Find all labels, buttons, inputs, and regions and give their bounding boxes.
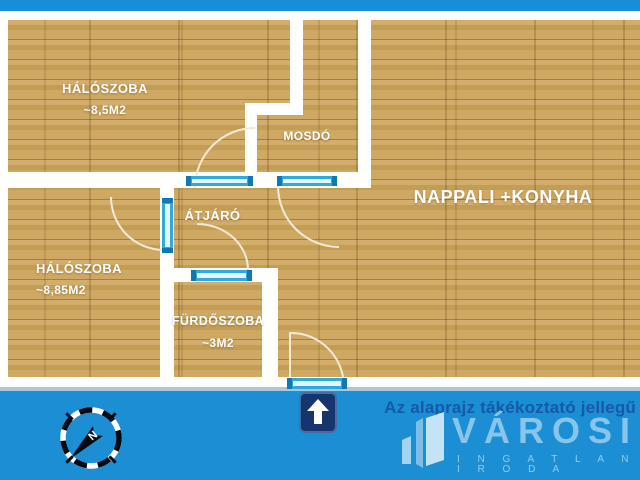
brand-wordmark: VÁROSI	[452, 413, 638, 449]
room-label-atjaro: ÁTJÁRÓ	[165, 209, 260, 222]
room-label-mosdo: MOSDÓ	[262, 130, 352, 142]
door-mosdo	[277, 176, 337, 186]
wall-mosdo-upper	[290, 20, 303, 112]
floorplan-image: HÁLÓSZOBA ~8,5M2 MOSDÓ ÁTJÁRÓ HÁLÓSZOBA …	[0, 0, 640, 480]
door-haloszoba-top	[186, 176, 253, 186]
room-label-nappali: NAPPALI +KONYHA	[378, 188, 628, 206]
buildings-logo-icon	[398, 410, 454, 470]
room-label-furdoszoba: FÜRDŐSZOBA ~3M2	[166, 315, 270, 349]
compass-icon: N	[55, 401, 127, 475]
outer-wall-top	[0, 11, 640, 20]
wall-nappali-divider	[358, 20, 371, 186]
brand-subtitle: I N G A T L A N I R O D A	[457, 455, 640, 475]
up-arrow-icon	[299, 392, 337, 433]
outer-wall-left	[0, 20, 8, 377]
door-furdoszoba	[191, 270, 252, 281]
room-label-haloszoba-bottom: HÁLÓSZOBA ~8,85M2	[36, 262, 176, 296]
room-label-haloszoba-top: HÁLÓSZOBA ~8,5M2	[30, 82, 180, 116]
door-entry	[287, 378, 347, 389]
header-bar	[0, 0, 640, 11]
door-haloszoba-bottom	[162, 198, 173, 253]
